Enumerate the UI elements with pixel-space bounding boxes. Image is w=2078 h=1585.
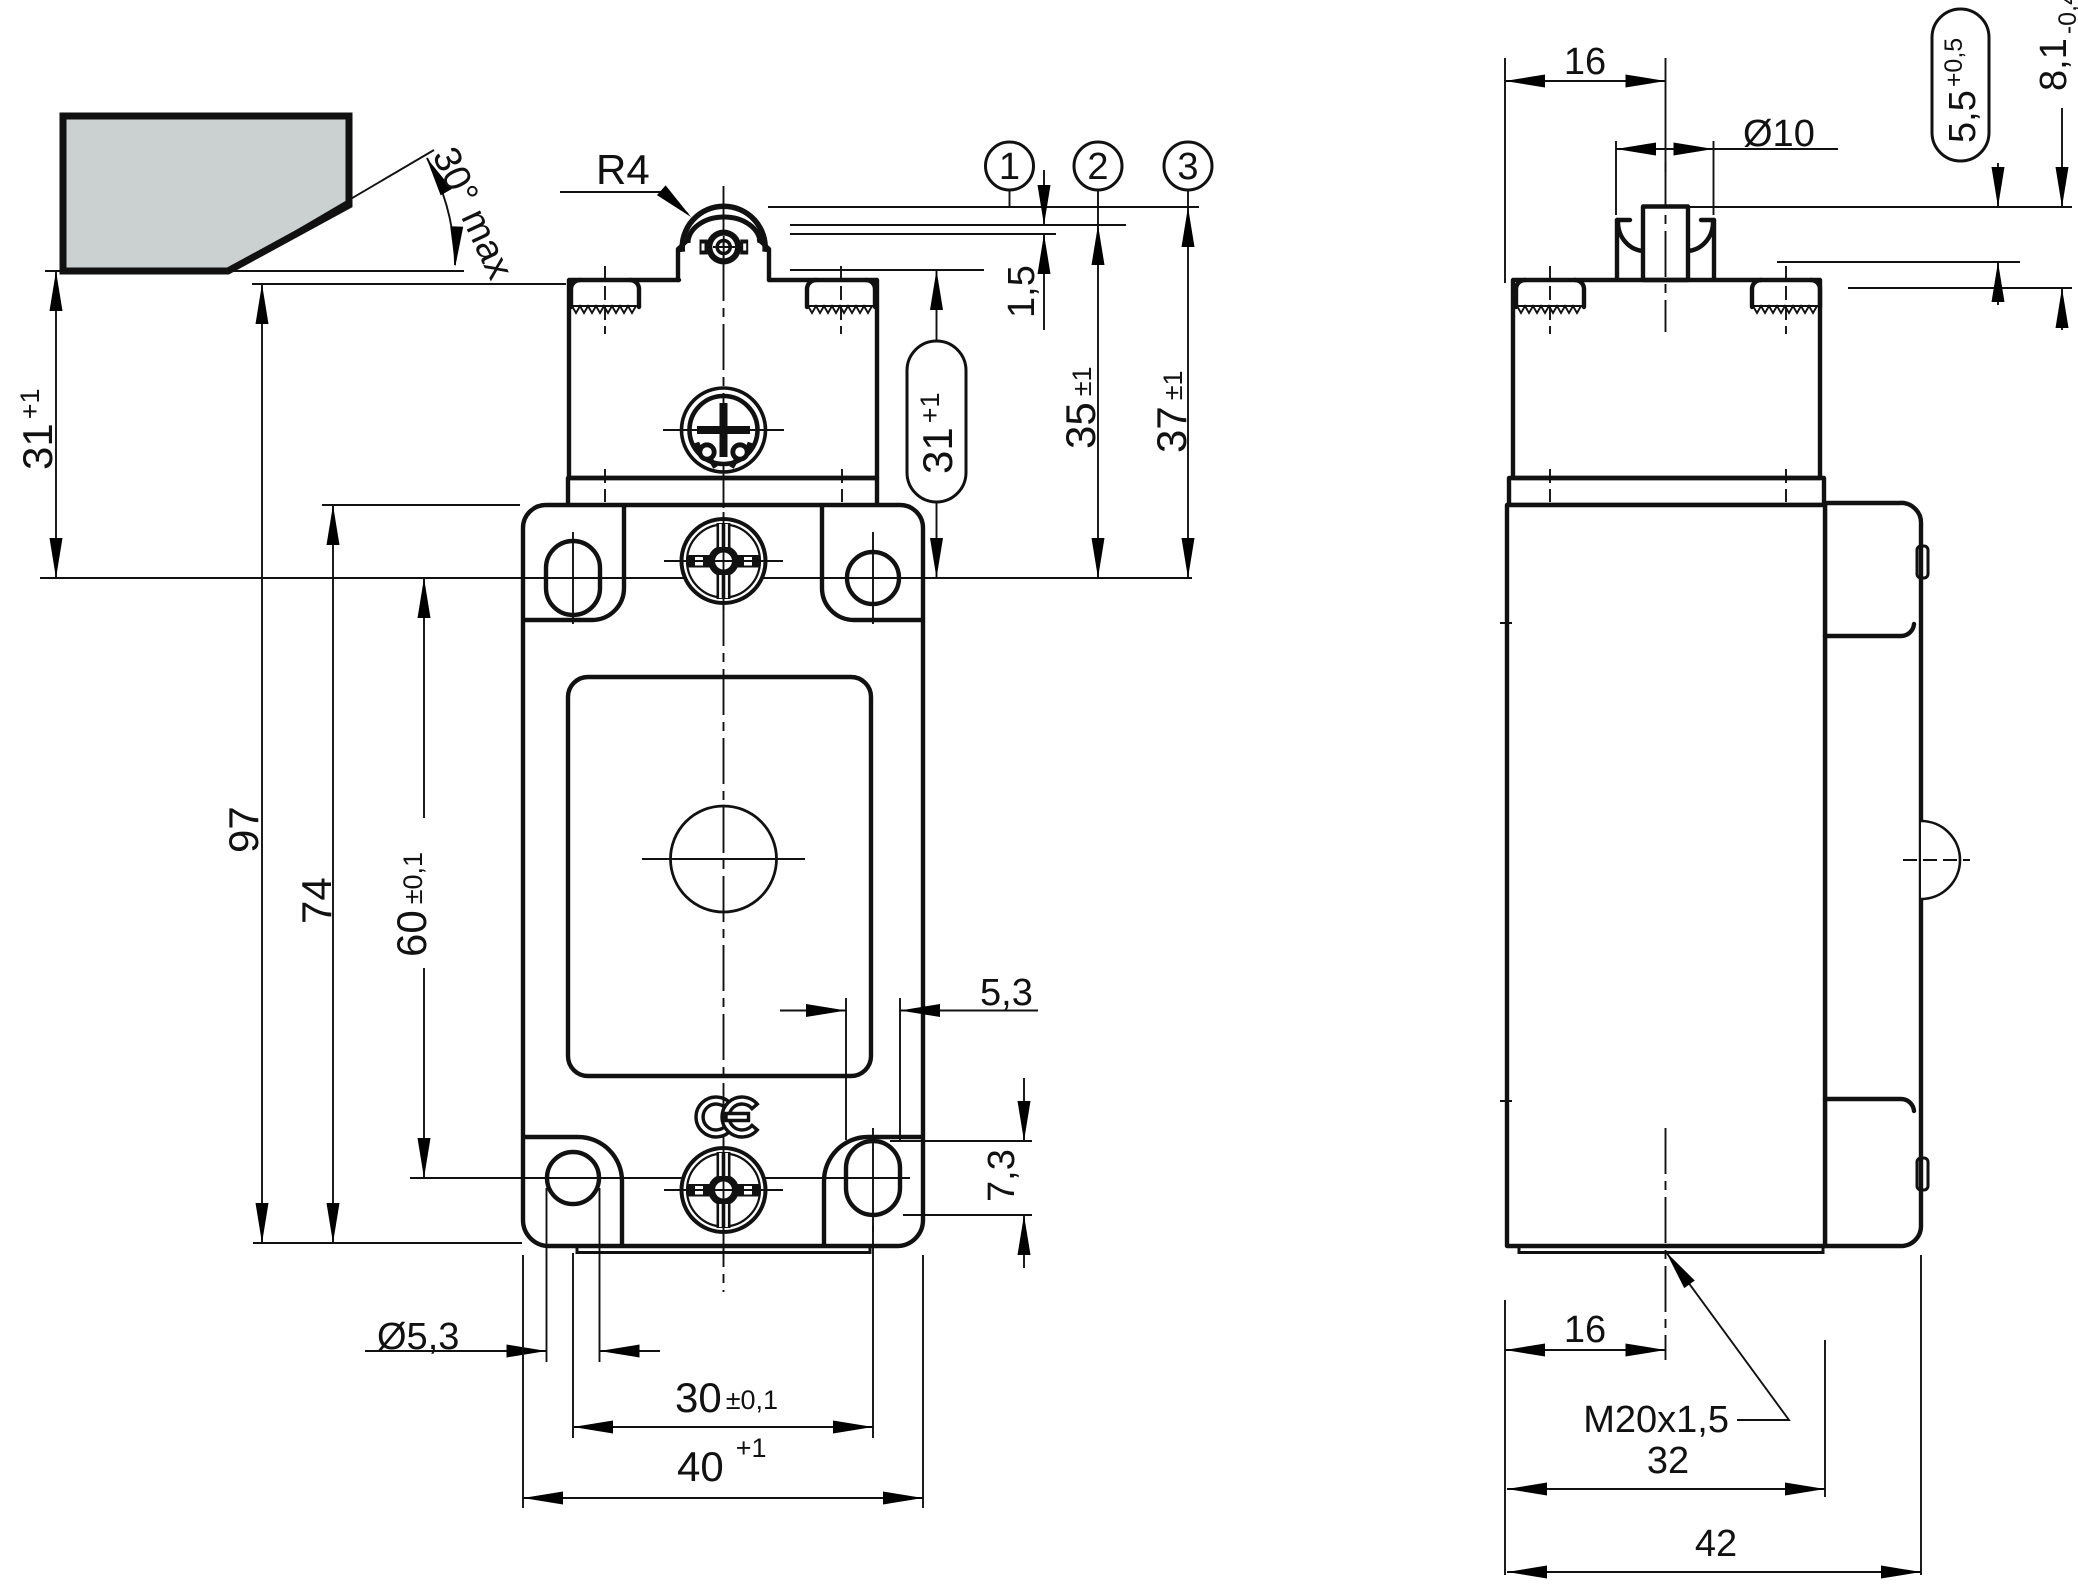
svg-text:3: 3: [1177, 146, 1198, 188]
svg-text:97: 97: [220, 806, 267, 853]
svg-text:1: 1: [999, 146, 1020, 188]
svg-text:Ø5,3: Ø5,3: [377, 1316, 459, 1358]
svg-text:32: 32: [1647, 1440, 1689, 1482]
svg-text:R4: R4: [596, 146, 650, 193]
svg-text:Ø10: Ø10: [1743, 113, 1815, 155]
svg-text:16: 16: [1564, 1309, 1606, 1351]
svg-text:74: 74: [293, 877, 340, 924]
svg-text:M20x1,5: M20x1,5: [1583, 1399, 1729, 1441]
svg-text:2: 2: [1087, 146, 1108, 188]
svg-text:5,3: 5,3: [980, 972, 1033, 1014]
svg-text:42: 42: [1695, 1523, 1737, 1565]
svg-text:7,3: 7,3: [981, 1149, 1023, 1202]
svg-text:16: 16: [1564, 41, 1606, 83]
svg-text:1,5: 1,5: [1001, 265, 1043, 318]
